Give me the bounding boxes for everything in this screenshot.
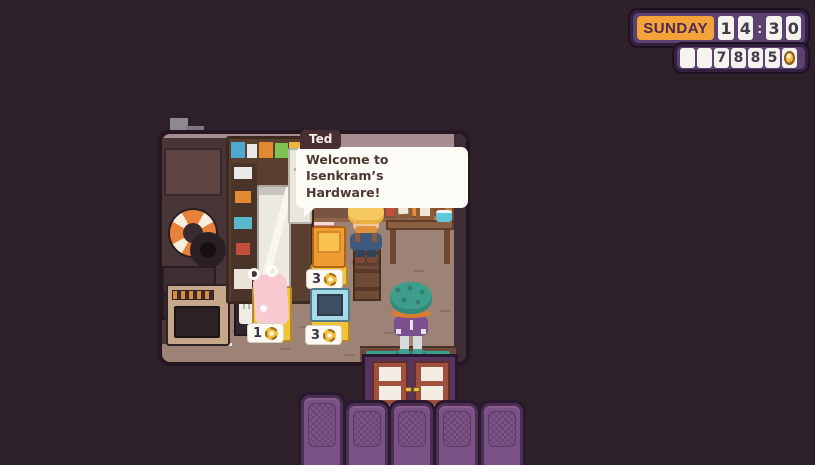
inventory-slot-3[interactable]: [391, 403, 433, 465]
tire: [190, 232, 226, 268]
ted-mustache: [355, 226, 377, 233]
money-panel: 7 8 8 5: [674, 44, 808, 72]
shop-item-pink-inflatable[interactable]: 1: [250, 274, 294, 342]
stove-vent: [172, 290, 214, 300]
coin-icon: [784, 51, 795, 65]
inflatable-ring-detail: [248, 268, 260, 280]
money-digit-2: [697, 48, 712, 68]
player-hair: [390, 282, 432, 314]
time-colon: :: [757, 20, 762, 37]
currency-cell: [782, 48, 797, 68]
orange-machine-body: [312, 226, 346, 268]
ted-boot: [355, 257, 365, 263]
tv-frame: [310, 288, 350, 322]
price-value: 3: [311, 328, 320, 343]
game-screen: SUNDAY 1 4 : 3 0 7 8 8 5: [0, 0, 815, 465]
price-tag: 3: [307, 270, 342, 288]
dialog-speaker-name: Ted: [300, 130, 341, 149]
dialog-bubble-tail: [304, 207, 316, 217]
clock-panel: SUNDAY 1 4 : 3 0: [630, 10, 808, 46]
time-digit-min-ones: 0: [786, 16, 801, 40]
gear-coin-icon: [265, 327, 278, 340]
pink-inflatable-body: [252, 273, 290, 327]
dialog-line-1: Welcome to Isenkram’s: [306, 152, 458, 185]
price-value: 1: [253, 326, 262, 341]
gear-coin-icon: [324, 273, 337, 286]
slot-texture: [398, 411, 426, 447]
dialog-bubble[interactable]: Welcome to Isenkram’s Hardware!: [296, 147, 468, 208]
left-storage-unit: [162, 138, 228, 344]
money-digit-3: 7: [714, 48, 729, 68]
day-badge: SUNDAY: [637, 16, 714, 40]
door-handle: [413, 387, 420, 392]
ted-boot: [367, 257, 377, 263]
dialog-line-2: Hardware!: [306, 185, 458, 201]
metal-plate-crate: [164, 148, 222, 196]
inventory-slot-4[interactable]: [436, 403, 478, 465]
shop-item-orange-machine[interactable]: 3: [310, 226, 348, 286]
inflatable-ring-detail: [266, 265, 278, 277]
blue-bowl: [436, 210, 452, 222]
shop-item-blue-tv[interactable]: 3: [308, 288, 352, 346]
time-digit-hour-tens: 1: [718, 16, 733, 40]
counter-leg: [390, 230, 396, 264]
slot-texture: [353, 411, 381, 447]
time-digit-hour-ones: 4: [738, 16, 753, 40]
inventory-slot-2[interactable]: [346, 403, 388, 465]
inventory-hotbar: [301, 403, 525, 465]
player-character: [390, 282, 432, 356]
slot-texture: [488, 411, 516, 447]
money-digit-1: [680, 48, 695, 68]
inventory-slot-1-selected[interactable]: [301, 395, 343, 465]
npc-ted[interactable]: [348, 198, 384, 264]
money-digit-5: 8: [748, 48, 763, 68]
gear-coin-icon: [323, 329, 336, 342]
player-pant: [400, 336, 409, 349]
orange-machine-panel: [317, 231, 341, 253]
player-body: [394, 316, 428, 336]
price-tag: 3: [306, 326, 341, 344]
slot-texture: [443, 411, 471, 447]
inventory-slot-5[interactable]: [481, 403, 523, 465]
tire-hole: [200, 242, 216, 258]
money-digit-6: 5: [765, 48, 780, 68]
stove: [166, 284, 230, 346]
ted-body: [350, 233, 382, 251]
player-pant: [413, 336, 422, 349]
stove-door: [174, 306, 220, 338]
door-handle: [405, 387, 412, 392]
tv-screen: [317, 294, 343, 316]
time-digit-min-tens: 3: [766, 16, 781, 40]
money-digit-4: 8: [731, 48, 746, 68]
counter-leg: [444, 230, 450, 264]
price-tag: 1: [248, 324, 283, 342]
slot-texture: [308, 403, 336, 447]
price-value: 3: [312, 272, 321, 287]
